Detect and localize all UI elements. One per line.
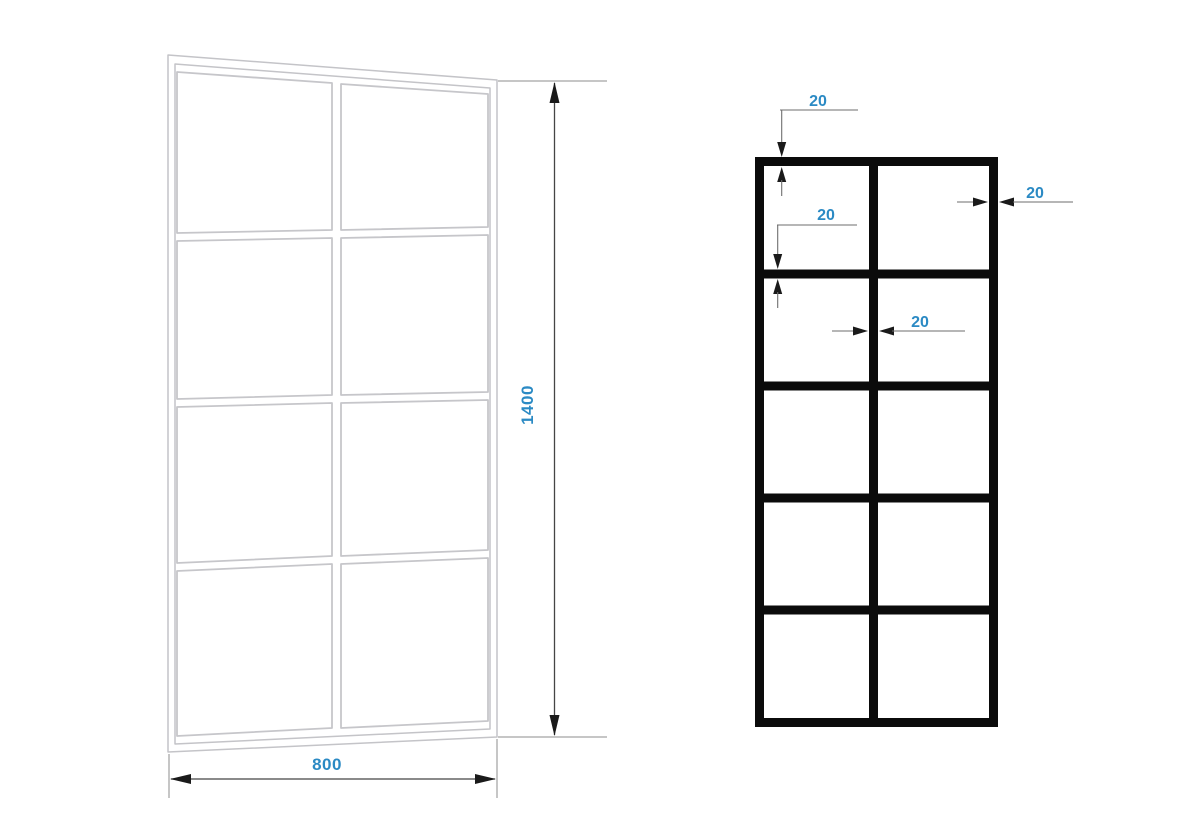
width-dimension-label: 800	[312, 755, 342, 774]
top-frame-thickness-label: 20	[809, 93, 827, 110]
panel-cell	[341, 235, 488, 395]
panel-cell	[177, 403, 332, 563]
arrow-left-icon	[879, 327, 894, 336]
arrow-right-icon	[973, 198, 988, 207]
vertical-mullion-thickness-label: 20	[911, 314, 929, 331]
panel-cell	[177, 238, 332, 399]
panel-cell	[341, 84, 488, 230]
panel-cell	[177, 72, 332, 233]
horizontal-mullion-thickness-label: 20	[817, 207, 835, 224]
arrow-down-icon	[550, 715, 560, 736]
arrow-down-icon	[777, 142, 786, 157]
arrow-left-icon	[170, 774, 191, 784]
arrow-up-icon	[550, 82, 560, 103]
grid-elevation-drawing	[755, 157, 998, 727]
right-frame-thickness-label: 20	[1026, 185, 1044, 202]
arrow-right-icon	[853, 327, 868, 336]
callout-horizontal-mullion: 20	[773, 207, 857, 308]
arrow-left-icon	[999, 198, 1014, 207]
arrow-down-icon	[773, 254, 782, 269]
panel-cell	[177, 564, 332, 736]
callout-top-frame: 20	[777, 93, 858, 196]
arrow-right-icon	[475, 774, 496, 784]
drawing-canvas: 1400 800 20 20	[0, 0, 1200, 837]
panel-cell	[341, 558, 488, 728]
panel-perspective-drawing	[168, 55, 497, 752]
panel-cell	[341, 400, 488, 556]
callout-right-frame: 20	[957, 185, 1073, 207]
dimension-width: 800	[169, 739, 497, 798]
dimension-height: 1400	[498, 81, 607, 737]
arrow-up-icon	[773, 279, 782, 294]
height-dimension-label: 1400	[518, 385, 537, 425]
callout-vertical-mullion: 20	[832, 314, 965, 336]
arrow-up-icon	[777, 167, 786, 182]
technical-drawing: 1400 800 20 20	[0, 0, 1200, 837]
